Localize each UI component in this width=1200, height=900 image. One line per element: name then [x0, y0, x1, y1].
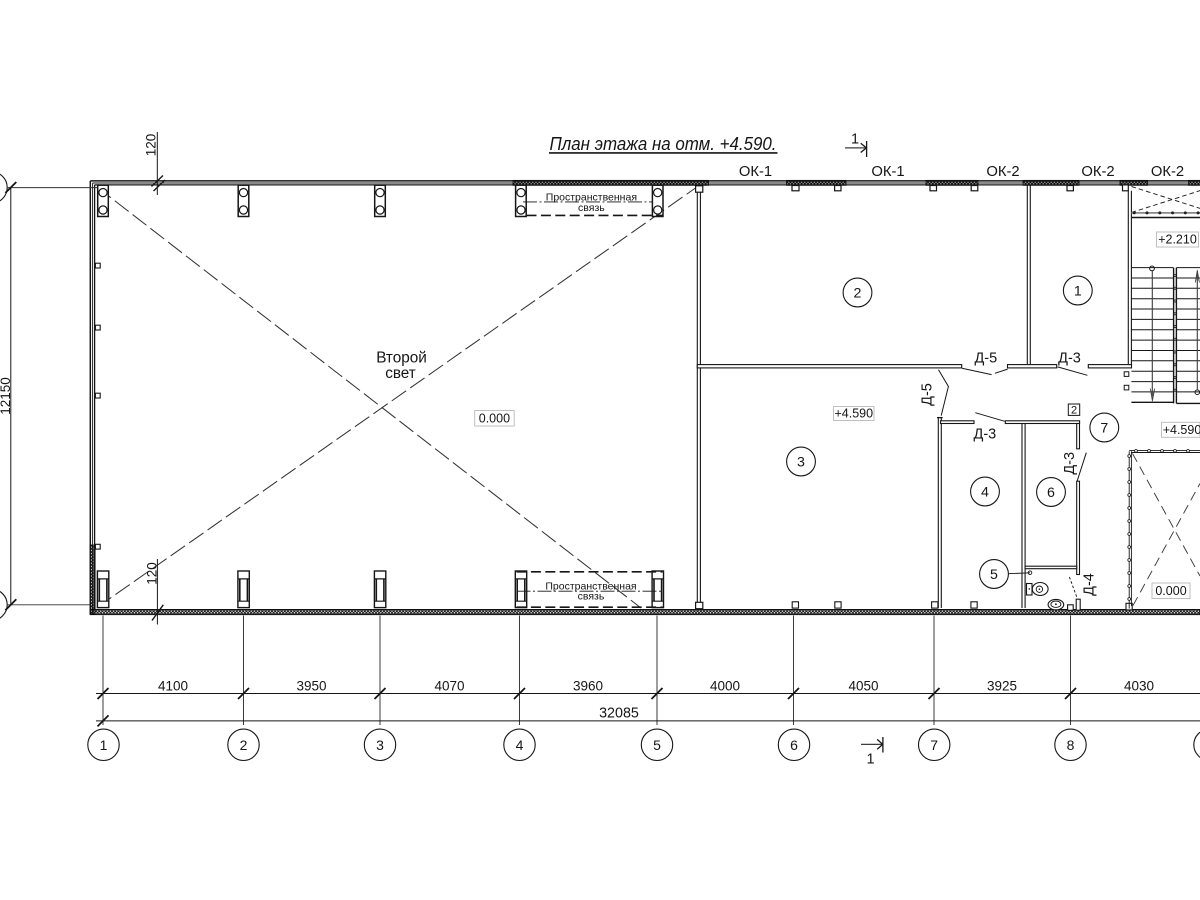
svg-text:2: 2: [1071, 404, 1077, 416]
svg-text:+4.590: +4.590: [1163, 423, 1200, 437]
svg-text:7: 7: [930, 737, 938, 753]
svg-text:2: 2: [240, 737, 248, 753]
svg-text:+4.590: +4.590: [835, 407, 874, 421]
svg-text:ОК-2: ОК-2: [986, 164, 1019, 180]
svg-text:1: 1: [1074, 284, 1082, 300]
svg-text:120: 120: [143, 134, 158, 157]
svg-text:Д-3: Д-3: [974, 426, 997, 442]
svg-text:6: 6: [1047, 485, 1055, 501]
svg-text:5: 5: [990, 567, 998, 583]
svg-text:0.000: 0.000: [1155, 584, 1186, 598]
svg-text:2: 2: [854, 286, 862, 302]
svg-text:4: 4: [516, 737, 524, 753]
svg-text:1: 1: [100, 737, 108, 753]
svg-text:ОК-1: ОК-1: [739, 164, 772, 180]
svg-text:6: 6: [790, 737, 798, 753]
svg-text:8: 8: [1067, 737, 1075, 753]
svg-text:+2.210: +2.210: [1158, 233, 1197, 247]
svg-text:3: 3: [376, 737, 384, 753]
svg-text:12150: 12150: [0, 377, 13, 415]
svg-text:7: 7: [1100, 421, 1108, 437]
svg-text:4030: 4030: [1124, 679, 1154, 694]
svg-text:свет: свет: [385, 365, 416, 382]
svg-text:3960: 3960: [573, 679, 603, 694]
svg-text:Второй: Второй: [376, 350, 427, 367]
svg-text:Д-3: Д-3: [1058, 350, 1081, 366]
svg-text:связь: связь: [578, 202, 605, 214]
svg-text:Д-5: Д-5: [919, 383, 935, 406]
svg-text:4: 4: [981, 485, 989, 501]
svg-text:связь: связь: [578, 591, 605, 603]
svg-text:1: 1: [851, 132, 859, 148]
svg-text:3950: 3950: [296, 679, 326, 694]
svg-text:4050: 4050: [848, 679, 878, 694]
svg-text:1: 1: [866, 752, 874, 768]
svg-text:Д-4: Д-4: [1081, 573, 1097, 596]
svg-text:4070: 4070: [434, 679, 464, 694]
svg-text:3925: 3925: [987, 679, 1017, 694]
svg-text:5: 5: [653, 737, 661, 753]
svg-text:Д-3: Д-3: [1062, 452, 1078, 475]
svg-text:ОК-2: ОК-2: [1151, 164, 1184, 180]
svg-text:0.000: 0.000: [479, 412, 510, 426]
svg-text:Д-5: Д-5: [974, 350, 997, 366]
svg-text:4000: 4000: [710, 679, 740, 694]
svg-text:4100: 4100: [158, 679, 188, 694]
svg-text:3: 3: [797, 455, 805, 471]
svg-text:ОК-2: ОК-2: [1081, 164, 1114, 180]
svg-text:ОК-1: ОК-1: [871, 164, 904, 180]
svg-text:32085: 32085: [599, 706, 639, 722]
svg-text:План этажа на отм. +4.590.: План этажа на отм. +4.590.: [550, 134, 777, 154]
